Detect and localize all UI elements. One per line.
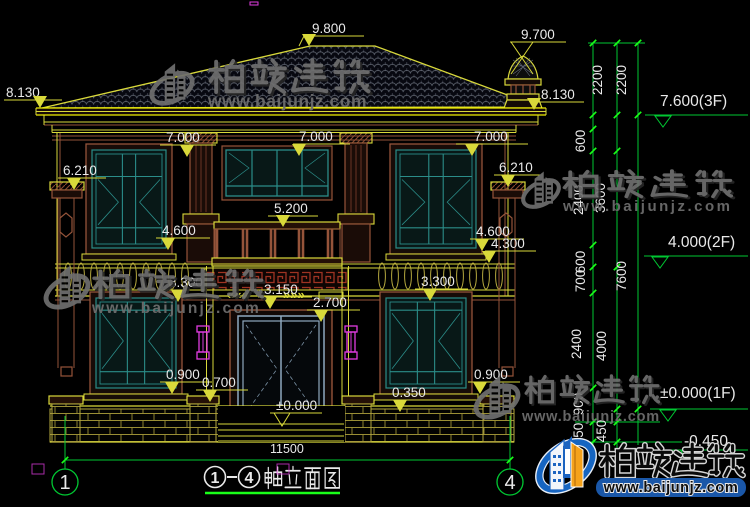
svg-text:2400: 2400	[569, 329, 584, 359]
svg-text:www.baijunjz.com: www.baijunjz.com	[207, 91, 367, 111]
svg-text:3.300: 3.300	[421, 274, 455, 289]
svg-text:www.baijunjz.com: www.baijunjz.com	[603, 480, 739, 496]
svg-text:7.600(3F): 7.600(3F)	[660, 93, 727, 110]
svg-text:700: 700	[573, 270, 588, 293]
svg-text:6.210: 6.210	[63, 163, 97, 178]
svg-text:7.000: 7.000	[299, 129, 333, 144]
svg-text:4.000(2F): 4.000(2F)	[668, 234, 735, 251]
svg-text:4: 4	[245, 470, 254, 487]
svg-text:2200: 2200	[614, 65, 629, 95]
svg-text:2200: 2200	[590, 65, 605, 95]
svg-text:9.700: 9.700	[521, 27, 555, 42]
svg-text:11500: 11500	[270, 442, 304, 456]
svg-text:2.700: 2.700	[313, 295, 347, 310]
svg-text:±0.000: ±0.000	[276, 398, 317, 413]
svg-text:±0.000(1F): ±0.000(1F)	[660, 385, 736, 402]
svg-text:0.700: 0.700	[202, 375, 236, 390]
svg-text:7.000: 7.000	[166, 130, 200, 145]
svg-text:8.130: 8.130	[541, 87, 575, 102]
svg-text:www.baijunjz.com: www.baijunjz.com	[562, 198, 732, 215]
svg-text:9.800: 9.800	[312, 21, 346, 36]
svg-text:4.300: 4.300	[491, 236, 525, 251]
svg-text:0.900: 0.900	[166, 367, 200, 382]
svg-text:7.000: 7.000	[474, 129, 508, 144]
svg-text:6.210: 6.210	[499, 160, 533, 175]
svg-text:3.150: 3.150	[264, 282, 298, 297]
svg-text:0.900: 0.900	[474, 367, 508, 382]
svg-text:1: 1	[59, 472, 70, 494]
svg-text:600: 600	[573, 130, 588, 153]
svg-text:0.350: 0.350	[392, 385, 426, 400]
svg-text:5.200: 5.200	[274, 201, 308, 216]
svg-text:www.baijunjz.com: www.baijunjz.com	[521, 409, 660, 425]
svg-text:4: 4	[504, 472, 515, 494]
svg-text:1: 1	[211, 470, 220, 487]
svg-text:www.baijunjz.com: www.baijunjz.com	[91, 300, 261, 317]
svg-text:4000: 4000	[594, 331, 609, 361]
svg-text:4.600: 4.600	[162, 223, 196, 238]
svg-text:7600: 7600	[614, 261, 629, 291]
